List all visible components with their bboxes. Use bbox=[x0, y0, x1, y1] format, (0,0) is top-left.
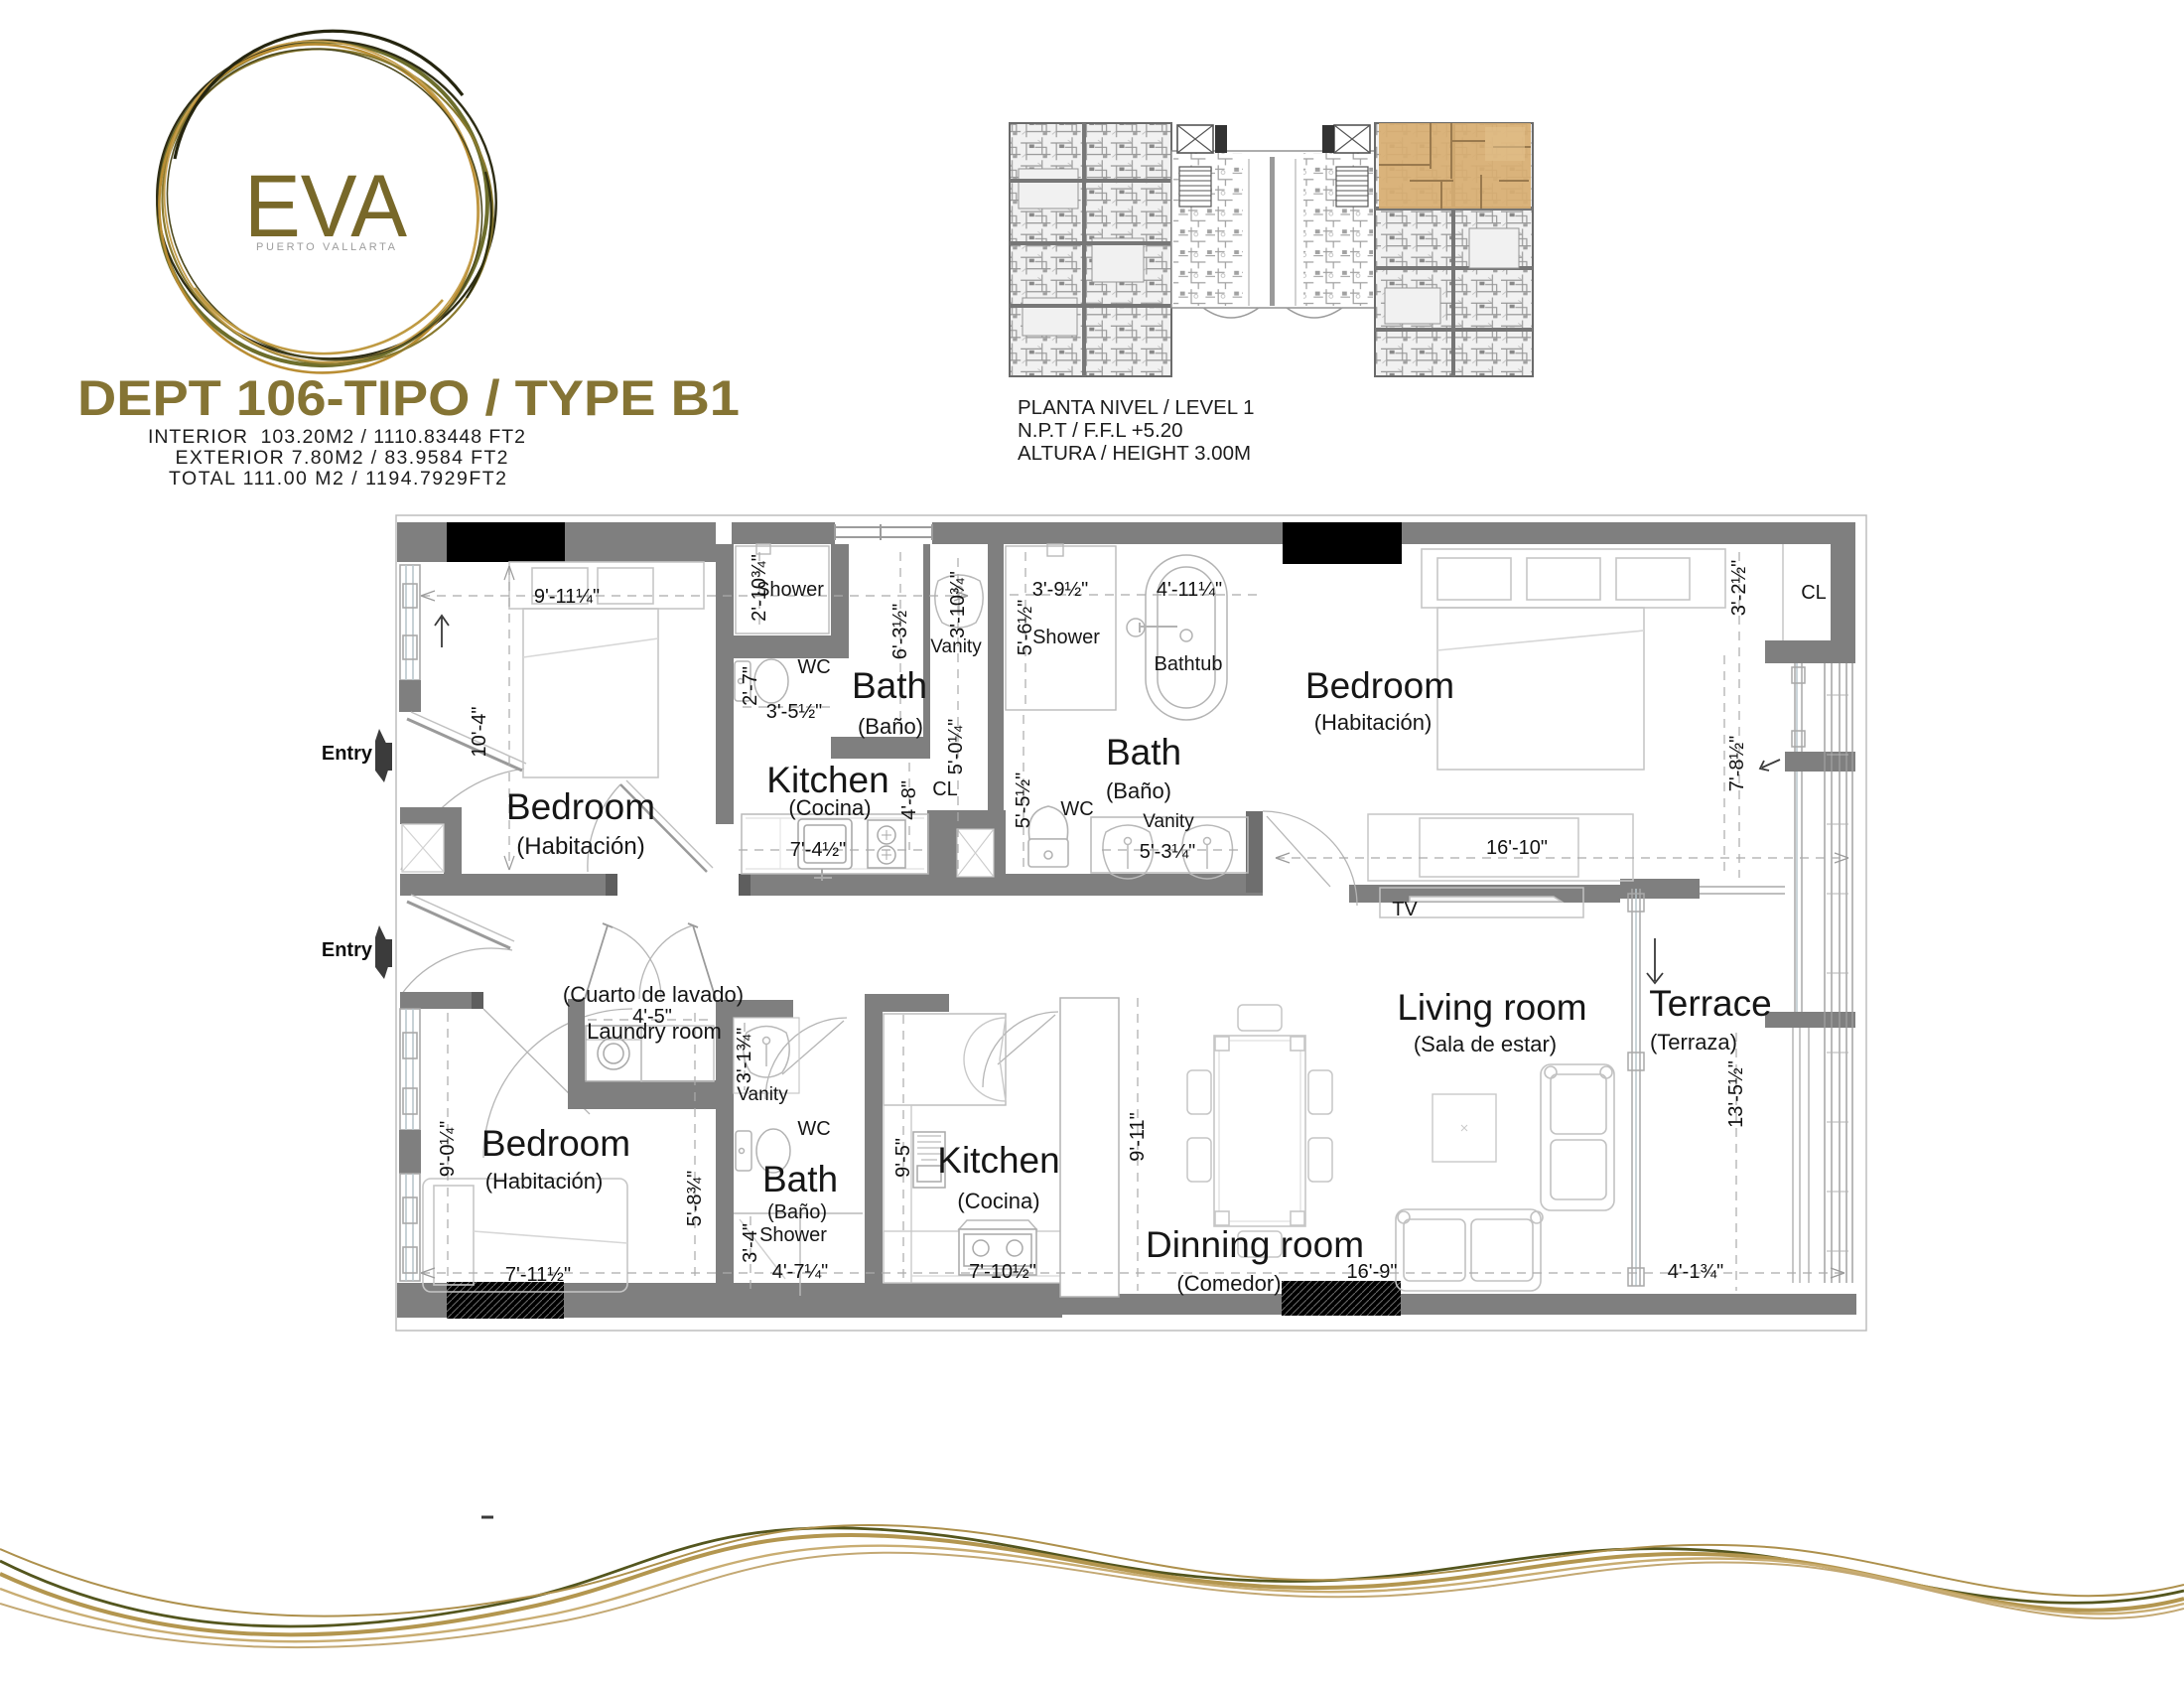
svg-text:3'-1¾": 3'-1¾" bbox=[734, 1028, 755, 1084]
svg-text:7'-10½": 7'-10½" bbox=[969, 1261, 1036, 1283]
svg-text:Bathtub: Bathtub bbox=[1155, 653, 1223, 675]
svg-text:5'-3¼": 5'-3¼" bbox=[1140, 841, 1196, 863]
svg-text:ALTURA / HEIGHT 3.00M: ALTURA / HEIGHT 3.00M bbox=[1018, 442, 1251, 465]
svg-text:EVA: EVA bbox=[244, 156, 408, 255]
svg-text:Vanity: Vanity bbox=[737, 1084, 788, 1105]
svg-text:(Cuarto de lavado): (Cuarto de lavado) bbox=[563, 982, 744, 1007]
svg-text:Terrace: Terrace bbox=[1649, 983, 1771, 1024]
svg-text:7'-8½": 7'-8½" bbox=[1726, 736, 1748, 792]
svg-text:4'-11¼": 4'-11¼" bbox=[1157, 579, 1222, 601]
svg-text:3'-9½": 3'-9½" bbox=[1032, 579, 1089, 601]
svg-text:(Cocina): (Cocina) bbox=[957, 1189, 1039, 1213]
svg-text:N.P.T / F.F.L +5.20: N.P.T / F.F.L +5.20 bbox=[1018, 419, 1183, 442]
svg-text:WC: WC bbox=[1060, 798, 1093, 820]
svg-text:5'-8¾": 5'-8¾" bbox=[684, 1171, 706, 1227]
svg-text:5'-6½": 5'-6½" bbox=[1015, 600, 1036, 656]
svg-text:Bedroom: Bedroom bbox=[1305, 665, 1454, 706]
svg-text:INTERIOR 103.20M2 / 1110.8344: INTERIOR 103.20M2 / 1110.83448 FT2 bbox=[148, 426, 525, 448]
svg-text:Bath: Bath bbox=[852, 665, 927, 706]
svg-text:Bath: Bath bbox=[1106, 732, 1181, 773]
svg-text:7'-11½": 7'-11½" bbox=[505, 1264, 571, 1286]
svg-text:Vanity: Vanity bbox=[1143, 811, 1194, 832]
svg-text:TOTAL 111.00 M2 / 1194.7929FT2: TOTAL 111.00 M2 / 1194.7929FT2 bbox=[169, 468, 506, 490]
svg-text:Kitchen: Kitchen bbox=[766, 760, 888, 800]
svg-text:WC: WC bbox=[797, 656, 830, 678]
svg-text:PLANTA NIVEL / LEVEL 1: PLANTA NIVEL / LEVEL 1 bbox=[1018, 396, 1255, 419]
svg-text:(Sala de estar): (Sala de estar) bbox=[1414, 1032, 1557, 1056]
svg-text:(Cocina): (Cocina) bbox=[788, 795, 871, 820]
svg-text:(Comedor): (Comedor) bbox=[1176, 1271, 1281, 1296]
svg-text:Kitchen: Kitchen bbox=[937, 1140, 1059, 1181]
svg-text:13'-5½": 13'-5½" bbox=[1725, 1060, 1747, 1128]
svg-text:(Baño): (Baño) bbox=[1106, 778, 1171, 803]
svg-text:16'-9": 16'-9" bbox=[1347, 1261, 1398, 1283]
svg-text:EXTERIOR 7.80M2 / 83.9584 FT2: EXTERIOR 7.80M2 / 83.9584 FT2 bbox=[176, 447, 508, 469]
svg-text:TV: TV bbox=[1392, 899, 1418, 920]
svg-text:Dinning room: Dinning room bbox=[1146, 1224, 1364, 1265]
svg-text:PUERTO VALLARTA: PUERTO VALLARTA bbox=[256, 241, 396, 253]
svg-text:2'-10¾": 2'-10¾" bbox=[749, 554, 770, 622]
svg-text:Living room: Living room bbox=[1397, 987, 1586, 1028]
svg-text:(Habitación): (Habitación) bbox=[516, 833, 644, 860]
svg-text:(Habitación): (Habitación) bbox=[1314, 710, 1433, 735]
svg-text:7'-4½": 7'-4½" bbox=[790, 839, 847, 861]
svg-text:Entry: Entry bbox=[322, 939, 373, 961]
svg-text:16'-10": 16'-10" bbox=[1486, 837, 1548, 859]
svg-text:3'-5½": 3'-5½" bbox=[766, 701, 823, 723]
svg-text:Shower: Shower bbox=[759, 1224, 827, 1246]
svg-text:(Habitación): (Habitación) bbox=[485, 1169, 604, 1194]
svg-text:(Terraza): (Terraza) bbox=[1650, 1030, 1737, 1055]
svg-text:Shower: Shower bbox=[1032, 627, 1100, 648]
svg-text:Entry: Entry bbox=[322, 743, 373, 765]
svg-text:2'-7": 2'-7" bbox=[740, 666, 761, 706]
svg-text:4'-7¼": 4'-7¼" bbox=[772, 1261, 829, 1283]
svg-text:5'-0¼": 5'-0¼" bbox=[945, 719, 967, 775]
svg-text:WC: WC bbox=[797, 1118, 830, 1140]
svg-text:4'-8": 4'-8" bbox=[898, 780, 920, 820]
svg-text:3'-4": 3'-4" bbox=[740, 1223, 761, 1263]
svg-text:4'-1¾": 4'-1¾" bbox=[1668, 1261, 1724, 1283]
svg-text:9'-5": 9'-5" bbox=[892, 1138, 914, 1178]
svg-text:CL: CL bbox=[1801, 582, 1827, 604]
svg-text:4'-5": 4'-5" bbox=[632, 1006, 672, 1028]
svg-text:Bedroom: Bedroom bbox=[506, 786, 655, 827]
svg-text:(Baño): (Baño) bbox=[767, 1201, 827, 1223]
svg-text:9'-11": 9'-11" bbox=[1127, 1112, 1149, 1161]
svg-text:(Baño): (Baño) bbox=[858, 714, 923, 739]
svg-text:Bedroom: Bedroom bbox=[481, 1123, 630, 1164]
svg-text:CL: CL bbox=[932, 778, 958, 800]
svg-text:Bath: Bath bbox=[762, 1159, 838, 1199]
svg-text:9'-11¼": 9'-11¼" bbox=[534, 586, 600, 608]
svg-text:3'-10¾": 3'-10¾" bbox=[947, 571, 969, 638]
svg-text:10'-4": 10'-4" bbox=[469, 707, 490, 758]
svg-text:Vanity: Vanity bbox=[930, 636, 982, 657]
svg-text:5'-5½": 5'-5½" bbox=[1013, 773, 1034, 829]
svg-text:9'-0¼": 9'-0¼" bbox=[437, 1121, 459, 1178]
svg-text:6'-3½": 6'-3½" bbox=[889, 604, 911, 660]
svg-text:3'-2½": 3'-2½" bbox=[1728, 560, 1750, 617]
svg-text:DEPT 106-TIPO / TYPE B1: DEPT 106-TIPO / TYPE B1 bbox=[77, 369, 740, 426]
